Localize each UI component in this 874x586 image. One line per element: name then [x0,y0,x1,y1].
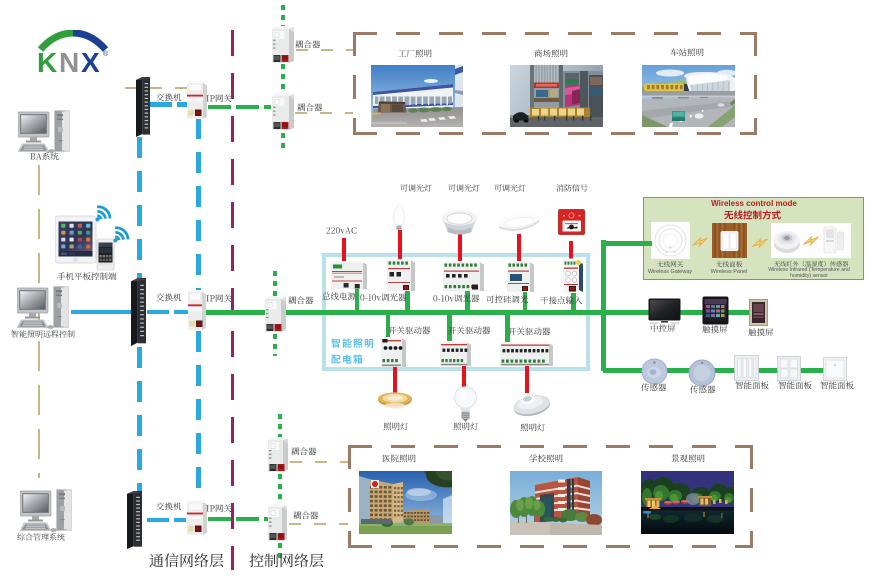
svg-text:X: X [81,47,100,75]
svg-text:N: N [59,47,79,75]
svg-text:®: ® [103,50,109,58]
svg-text:K: K [37,47,57,75]
